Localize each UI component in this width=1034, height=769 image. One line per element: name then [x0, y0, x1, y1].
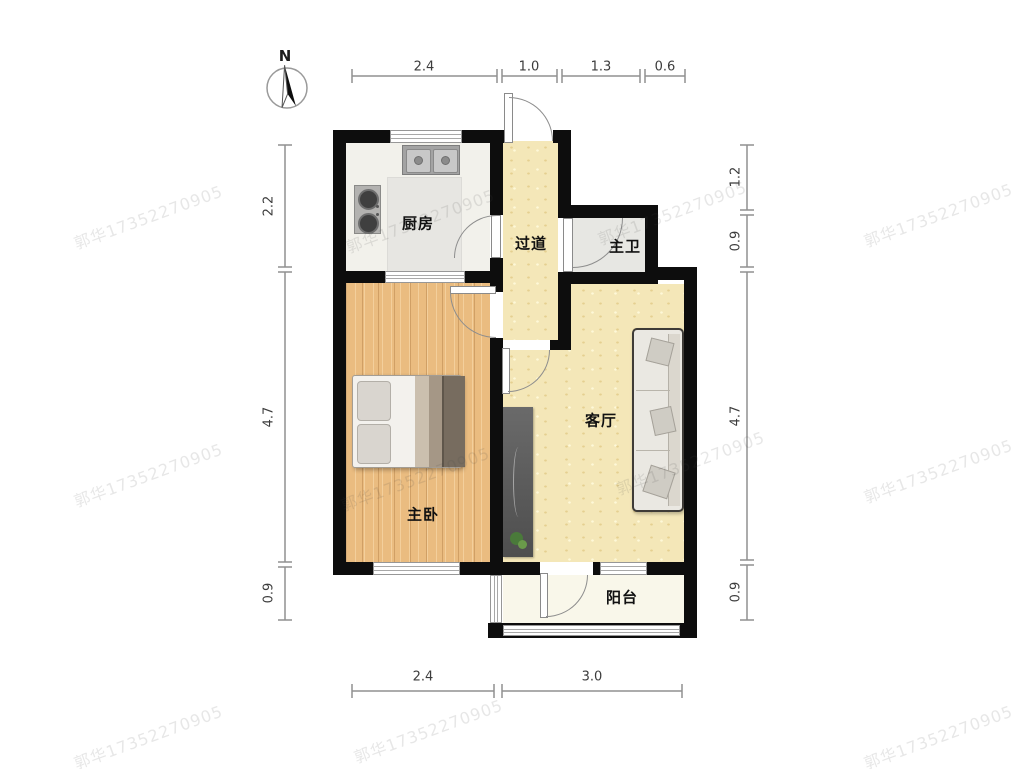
dim-right-2: 0.9: [729, 231, 744, 252]
dim-bottom-2: 3.0: [582, 670, 603, 685]
dim-left-2: 4.7: [262, 407, 277, 428]
dim-left-3: 0.9: [262, 583, 277, 604]
dim-top-2: 1.0: [519, 60, 540, 75]
dim-bottom-1: 2.4: [413, 670, 434, 685]
dim-right-4: 0.9: [729, 582, 744, 603]
dim-top-1: 2.4: [414, 60, 435, 75]
dim-left-1: 2.2: [262, 196, 277, 217]
dim-right-3: 4.7: [729, 406, 744, 427]
dim-top-4: 0.6: [655, 60, 676, 75]
dimension-lines: [0, 0, 1034, 769]
floor-plan-canvas: 厨房 过道 主卫 主卧 客厅 阳台 N: [0, 0, 1034, 769]
dim-top-3: 1.3: [591, 60, 612, 75]
